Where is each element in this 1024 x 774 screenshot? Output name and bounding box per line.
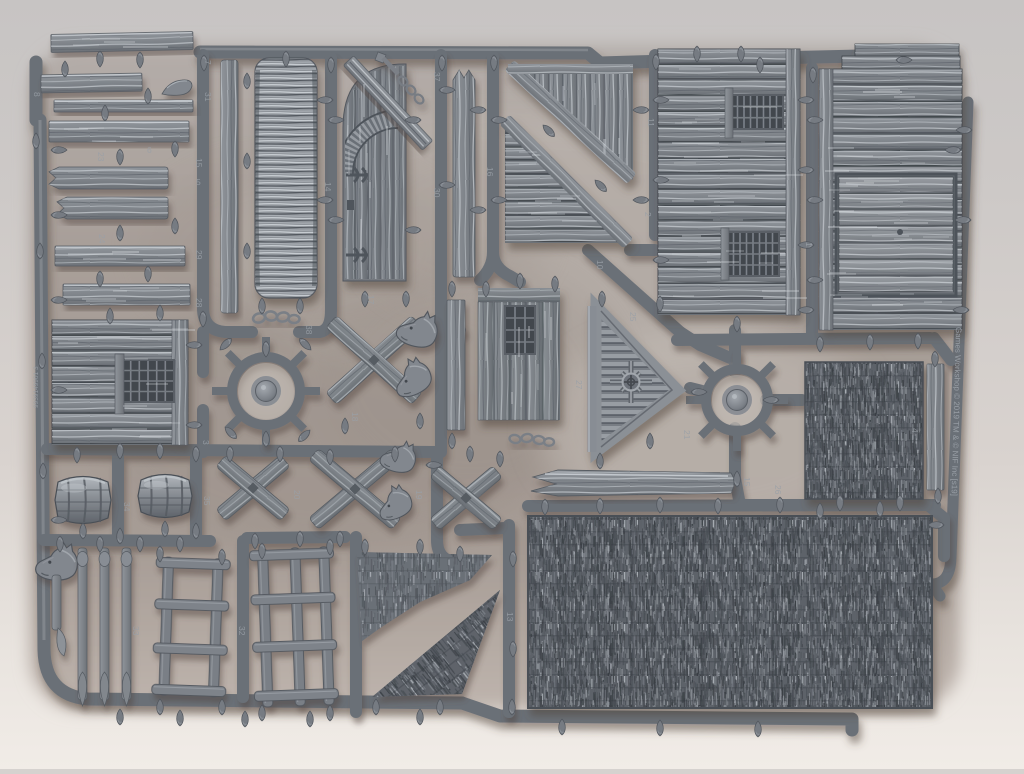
svg-text:20: 20 <box>292 490 302 500</box>
svg-text:16: 16 <box>485 167 495 177</box>
svg-text:1: 1 <box>804 242 814 247</box>
svg-text:23: 23 <box>96 152 106 162</box>
svg-text:29: 29 <box>194 250 204 260</box>
svg-text:30: 30 <box>432 188 442 198</box>
svg-text:26: 26 <box>773 485 783 495</box>
svg-text:9939149901 3: 9939149901 3 <box>33 366 40 408</box>
svg-text:6: 6 <box>147 145 152 155</box>
svg-text:17: 17 <box>366 295 376 305</box>
svg-text:34: 34 <box>122 502 132 512</box>
svg-text:24: 24 <box>97 234 107 244</box>
svg-text:32: 32 <box>237 626 247 636</box>
svg-text:15: 15 <box>742 477 752 487</box>
svg-text:33: 33 <box>131 626 141 636</box>
svg-text:14: 14 <box>323 182 333 192</box>
svg-text:18: 18 <box>350 412 360 422</box>
svg-text:3: 3 <box>201 440 211 445</box>
svg-text:25: 25 <box>628 312 638 322</box>
svg-text:15: 15 <box>194 158 204 168</box>
svg-text:13: 13 <box>505 612 515 622</box>
svg-text:7: 7 <box>203 60 213 65</box>
svg-text:28: 28 <box>194 298 204 308</box>
svg-text:31: 31 <box>203 92 213 102</box>
svg-text:5: 5 <box>196 177 201 187</box>
svg-text:27: 27 <box>574 380 584 390</box>
svg-text:8: 8 <box>32 92 42 97</box>
svg-text:37: 37 <box>432 72 442 82</box>
svg-text:35: 35 <box>202 496 212 506</box>
svg-text:38: 38 <box>304 325 314 335</box>
svg-text:11: 11 <box>646 118 656 127</box>
svg-text:4: 4 <box>910 428 920 433</box>
svg-text:10: 10 <box>595 260 605 270</box>
svg-text:2: 2 <box>643 212 653 217</box>
svg-text:21: 21 <box>682 430 692 440</box>
svg-text:19: 19 <box>414 490 424 500</box>
